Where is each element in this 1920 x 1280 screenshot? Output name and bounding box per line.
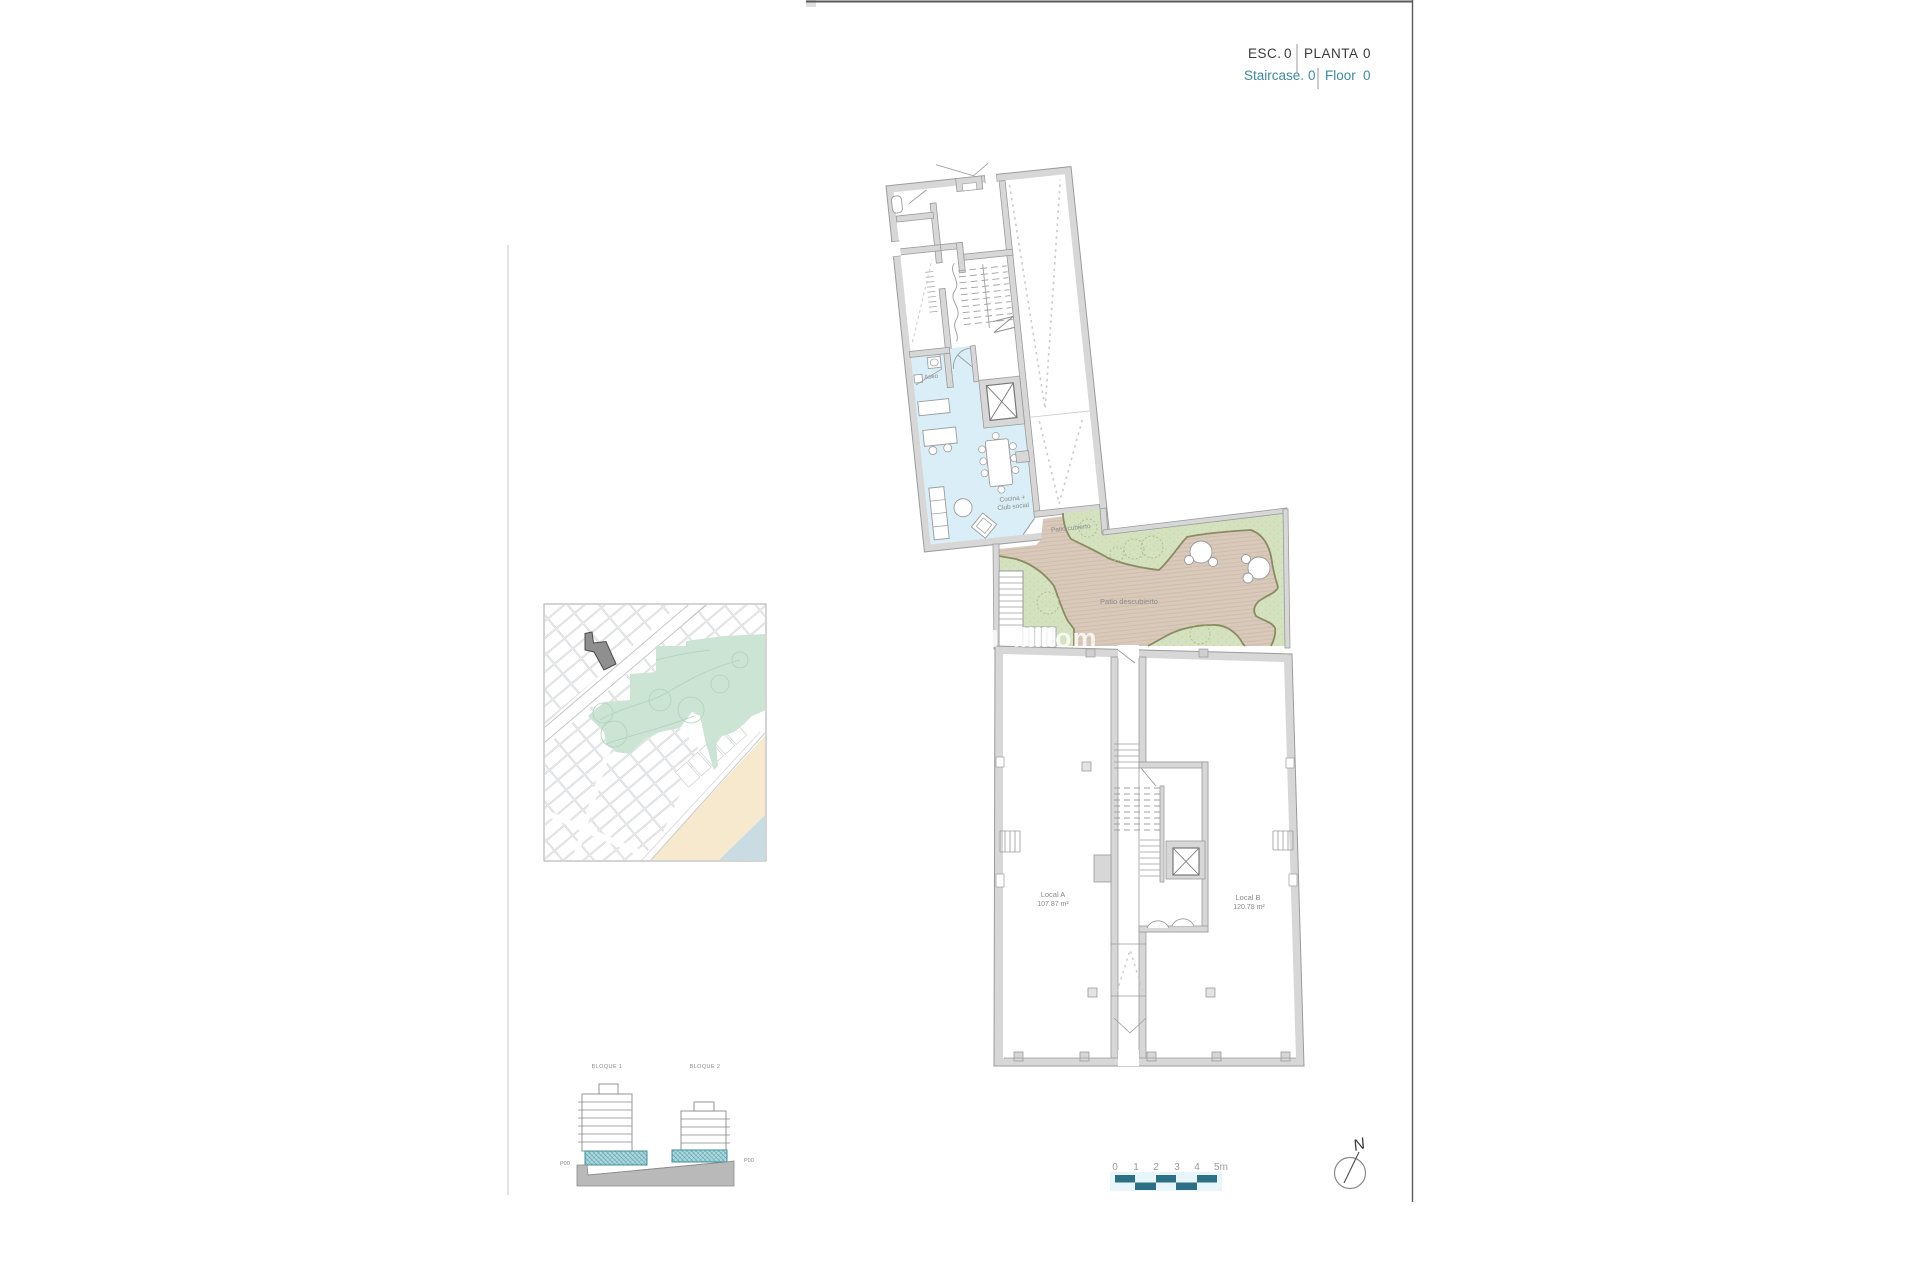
svg-text:BLOQUE 2: BLOQUE 2 xyxy=(690,1064,721,1070)
svg-text:P00: P00 xyxy=(560,1161,570,1167)
svg-text:107.87 m²: 107.87 m² xyxy=(1037,901,1069,908)
svg-text:Staircase.: Staircase. xyxy=(1244,68,1304,83)
svg-text:Floor: Floor xyxy=(1325,68,1356,83)
svg-text:om: om xyxy=(1055,623,1098,653)
svg-text:P00: P00 xyxy=(744,1158,754,1164)
svg-text:Local A: Local A xyxy=(1041,890,1066,899)
svg-text:0: 0 xyxy=(1112,1162,1118,1173)
svg-text:Patio descubierto: Patio descubierto xyxy=(1100,597,1158,606)
svg-text:1: 1 xyxy=(1133,1162,1139,1173)
svg-text:PLANTA: PLANTA xyxy=(1304,46,1359,61)
svg-text:Local B: Local B xyxy=(1235,893,1260,902)
svg-text:0: 0 xyxy=(1308,68,1316,83)
svg-text:4: 4 xyxy=(1194,1162,1200,1173)
svg-text:120.78 m²: 120.78 m² xyxy=(1233,904,1265,911)
svg-text:0: 0 xyxy=(1363,68,1371,83)
svg-text:5m: 5m xyxy=(1214,1162,1228,1173)
svg-text:0: 0 xyxy=(1363,46,1371,61)
svg-text:BLOQUE 1: BLOQUE 1 xyxy=(592,1064,623,1070)
svg-text:ESC.: ESC. xyxy=(1248,46,1282,61)
svg-text:2: 2 xyxy=(1153,1162,1159,1173)
svg-text:0: 0 xyxy=(1284,46,1292,61)
svg-text:3: 3 xyxy=(1174,1162,1180,1173)
